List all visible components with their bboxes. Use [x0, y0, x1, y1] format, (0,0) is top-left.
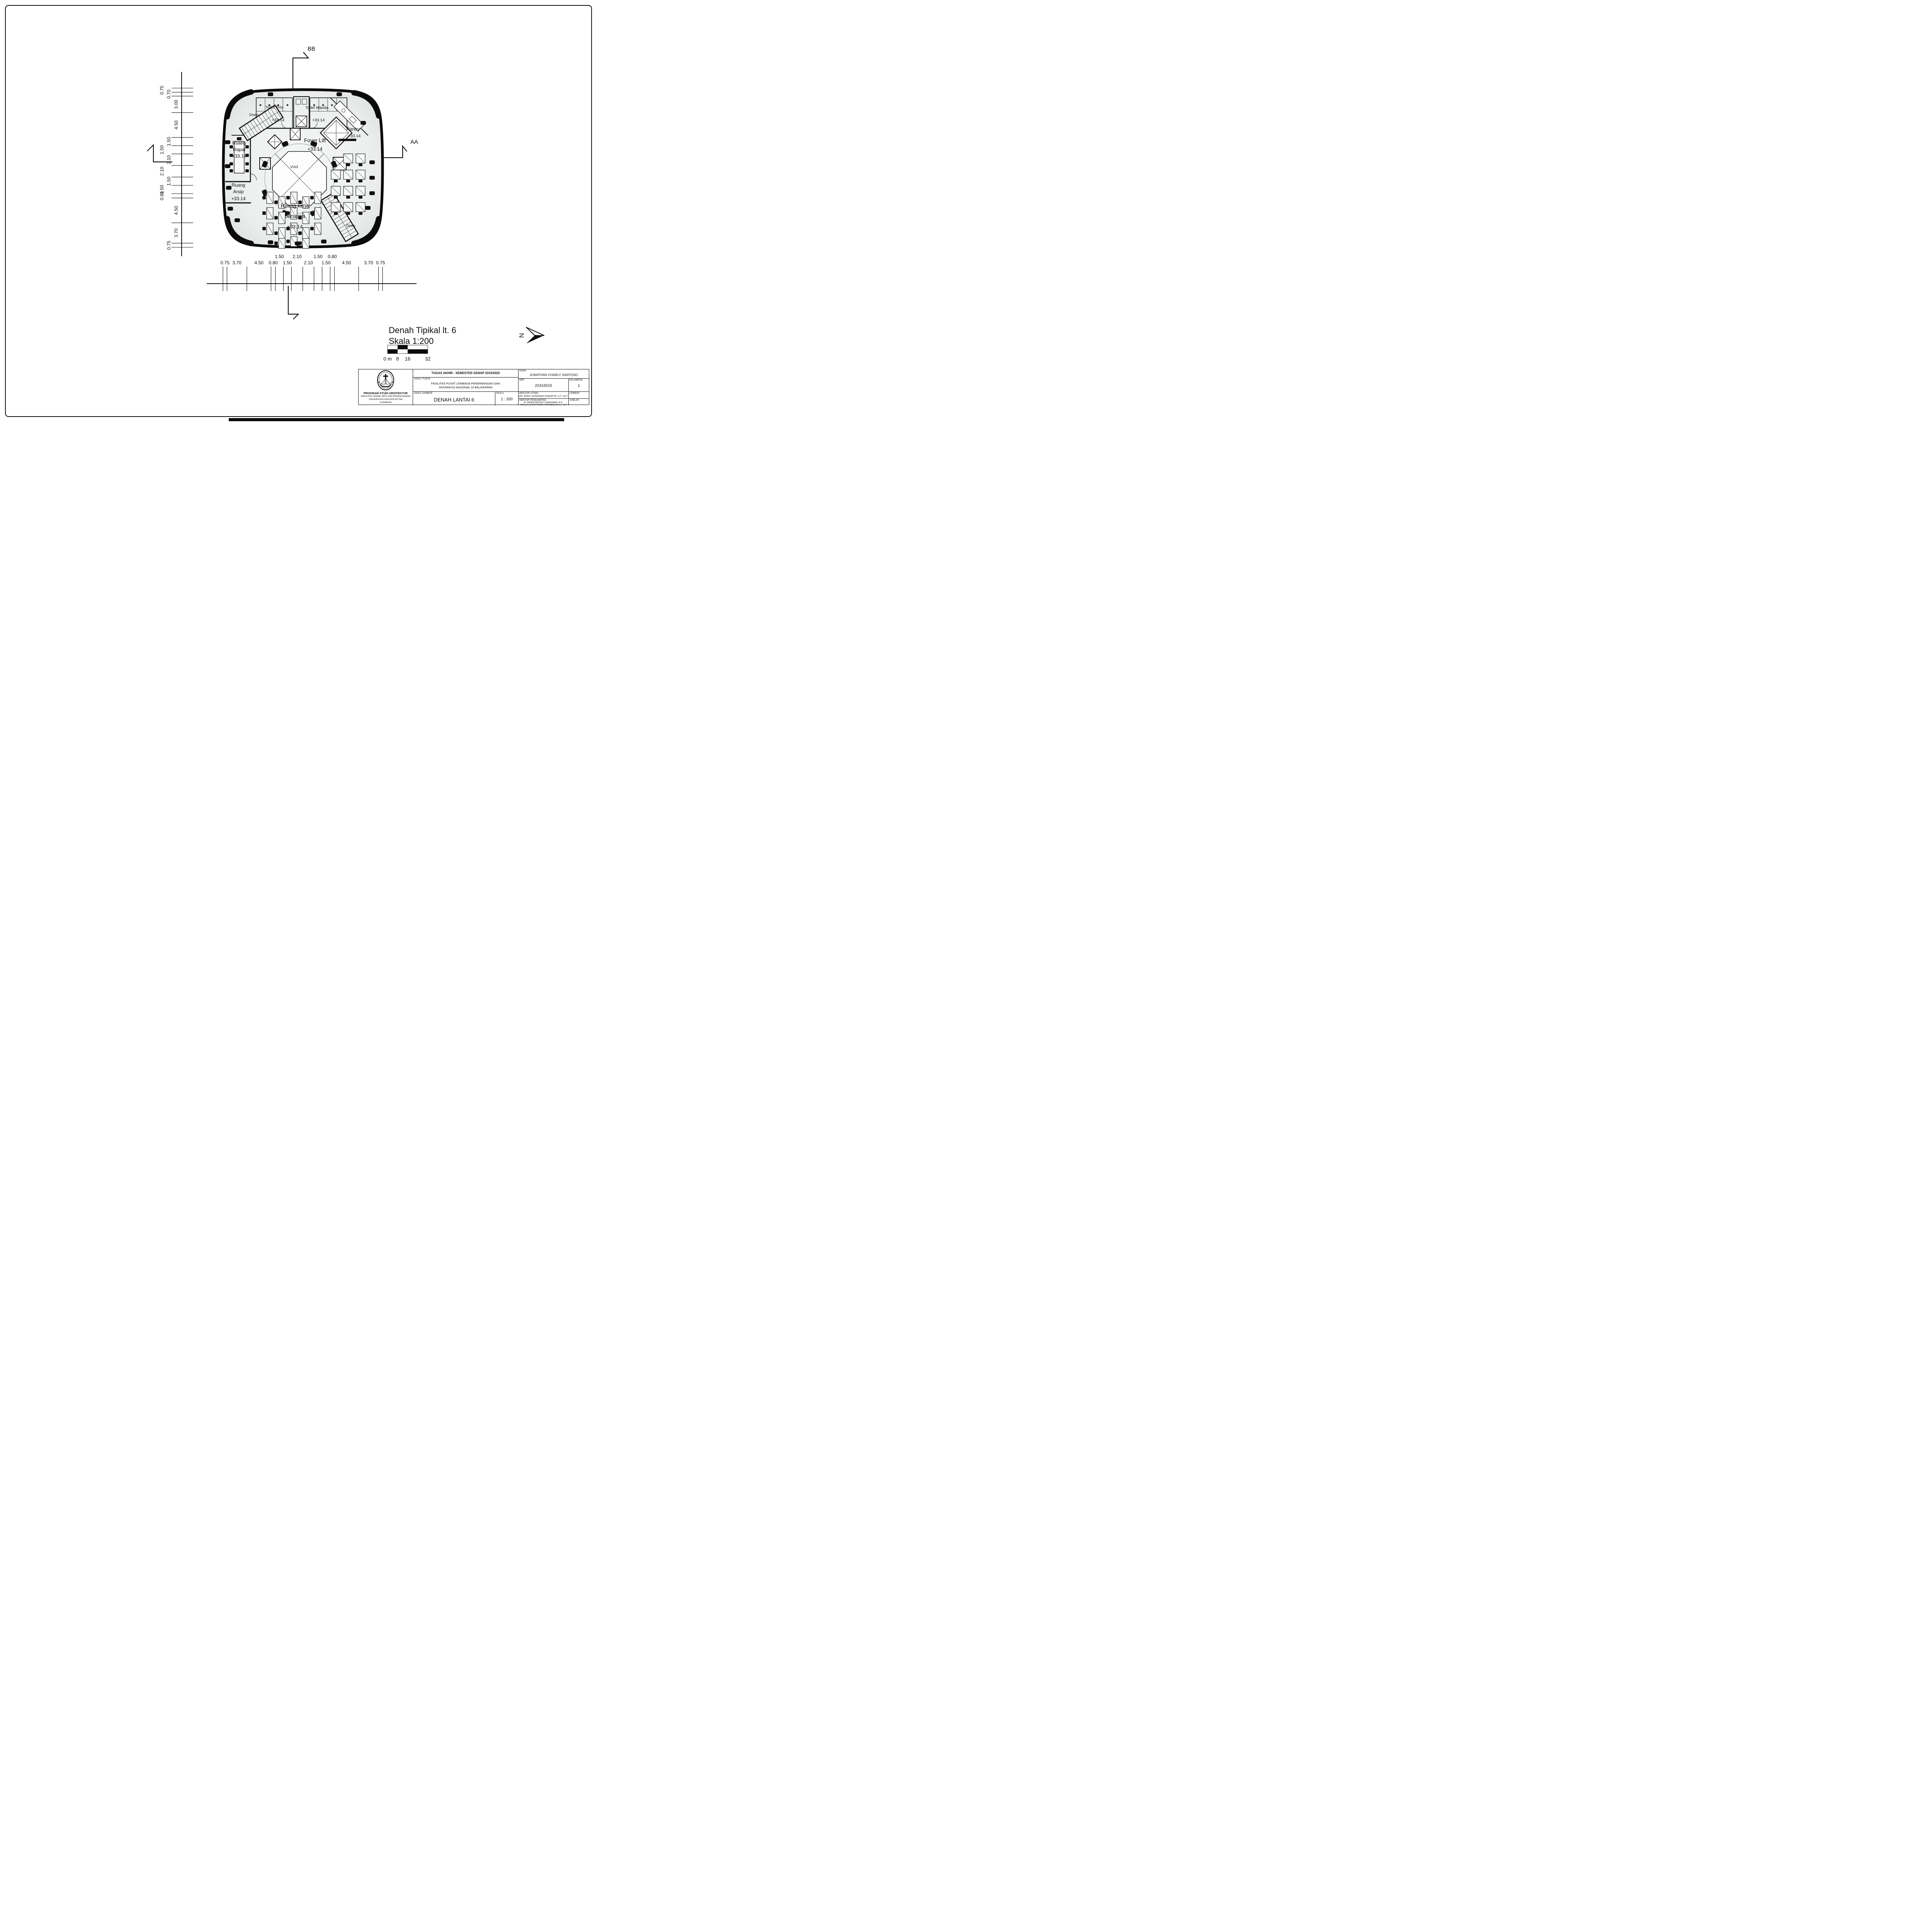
nrp-label: NRP [519, 379, 524, 381]
chair [359, 180, 362, 182]
scalebar-seg [408, 349, 428, 354]
floor-plan: Toilet Pria +33.14 Toilet Wanita +33.14 … [223, 90, 383, 248]
furniture-blob [369, 176, 375, 180]
label-ruang-arsip-1: Ruang [231, 182, 245, 188]
judul-tugas-line2: ANTARIKSA NASIONAL DI BALIKPAPAN [413, 386, 518, 389]
petra-university-logo [376, 370, 396, 390]
skala-cell: SKALA 1 : 200 [495, 391, 518, 405]
skala-value: 1 : 200 [495, 397, 518, 401]
furniture-blob [268, 92, 273, 96]
kelompok-label: KELOMPOK [570, 379, 583, 381]
label-ruang-rapat-elev: +33.14 [232, 153, 246, 159]
furniture-blob [225, 140, 230, 144]
mentor-pendamping-cell: MENTOR PENDAMPING IR. WANDA WIDIGDO CANA… [518, 398, 568, 405]
jumlah-cell: JUMLAH [568, 398, 589, 405]
label-void: Void [290, 165, 298, 169]
mentor-utama-cell: MENTOR UTAMA DR. RONY GUNAWAN SUNARYO, S… [518, 391, 568, 398]
dim-label-left: 1.50 [166, 137, 172, 146]
furniture-blob [321, 240, 327, 243]
label-ruang-arsip-elev: +33.14 [231, 196, 245, 201]
dim-label-bottom: 0.80 [328, 254, 337, 259]
dim-label-bottom: 0.80 [269, 260, 278, 265]
dim-label-bottom: 1.50 [275, 254, 284, 259]
label-toilet-pria-elev: +33.14 [272, 118, 285, 122]
north-arrow: N [518, 327, 544, 344]
chair [298, 231, 302, 235]
kelompok-cell: KELOMPOK 1 [568, 378, 589, 391]
chair [286, 196, 290, 199]
furniture-blob [225, 164, 230, 168]
dim-label-left: 4.50 [173, 206, 179, 215]
nama-label: NAMA [519, 370, 526, 372]
north-label: N [518, 333, 525, 338]
skala-label: SKALA [496, 392, 504, 395]
chair [286, 240, 290, 243]
chair [346, 212, 350, 215]
scalebar-label: 0 m [383, 356, 392, 362]
furniture-blob [361, 121, 366, 125]
label-pantry: Pantry [347, 126, 360, 132]
furniture-blob [295, 242, 300, 245]
mentor-pendamping-2: ANGELA CHRISTYSONIA TAMPUBOLON S.T., M.T… [519, 404, 568, 406]
chair [274, 216, 278, 219]
dim-label-left: 3.70 [173, 228, 179, 238]
chair [274, 242, 278, 245]
chair [334, 180, 338, 182]
furniture-blob [235, 218, 240, 222]
title-block-header-cell: TUGAS AKHIR - SEMESTER GENAP 2019/2020 [413, 369, 518, 377]
label-toilet-wanita-elev: +33.14 [312, 118, 325, 122]
tugas-akhir-header: TUGAS AKHIR - SEMESTER GENAP 2019/2020 [413, 371, 518, 375]
dim-label-bottom: 2.10 [293, 254, 302, 259]
program-studi: PROGRAM STUDI ARSITEKTUR [359, 391, 413, 395]
title-block: PROGRAM STUDI ARSITEKTUR FAKULTAS TEKNIK… [358, 369, 589, 405]
nama-cell: NAMA JONATHAN CHARLY SANTOSO [518, 369, 589, 378]
furniture-blob [337, 92, 342, 96]
lembar-cell: LEMBAR [568, 391, 589, 398]
section-line-b-bottom [288, 286, 298, 319]
nrp-value: 22416015 [519, 384, 568, 388]
dim-label-bottom: 0.75 [376, 260, 385, 265]
judul-gambar-cell: JUDUL GAMBAR DENAH LANTAI 6 [413, 391, 495, 405]
dim-label-left: 0.75 [159, 85, 165, 95]
chair [346, 180, 350, 182]
scalebar-seg [398, 345, 408, 349]
label-foyer-lift: Foyer Lift [304, 138, 326, 143]
mentor-utama-value: DR. RONY GUNAWAN SUNARYO, S.T., M.T. [519, 395, 568, 398]
dim-label-left: 1.50 [159, 145, 165, 155]
chair [359, 212, 362, 215]
lembar-label: LEMBAR [570, 392, 579, 395]
nrp-cell: NRP 22416015 [518, 378, 568, 391]
chair [274, 201, 278, 204]
sheet-bottom-bar [229, 418, 564, 421]
chair [310, 211, 314, 215]
dim-label-bottom: 2.10 [304, 260, 313, 265]
plan-footer: Denah Tipikal lt. 6 Skala 1:200 0 m81632… [383, 325, 544, 362]
dim-label-bottom: 1.50 [283, 260, 292, 265]
dim-label-left: 2.10 [159, 167, 165, 176]
kota: SURABAYA [359, 401, 413, 404]
dim-label-bottom: 1.50 [321, 260, 331, 265]
label-toilet-pria: Toilet Pria [265, 105, 283, 110]
chair [262, 196, 266, 199]
chair [334, 196, 338, 199]
label-ruang-rapat-1: Ruang [232, 140, 246, 146]
dim-label-bottom: 3.70 [232, 260, 241, 265]
scalebar-label: 16 [405, 356, 410, 362]
universitas: UNIVERSITAS KRISTEN PETRA [359, 398, 413, 401]
label-foyer-lift-elev: +33.14 [308, 146, 323, 152]
chair [346, 163, 350, 166]
chair [262, 211, 266, 215]
chair [310, 227, 314, 230]
label-ruang-kerja-2: bersama [285, 213, 305, 219]
dim-label-left: 3.00 [173, 100, 179, 109]
scalebar-label: 8 [396, 356, 399, 362]
dim-label-left: 0.75 [166, 241, 172, 250]
dim-label-left: 1.50 [166, 177, 172, 186]
dim-label-bottom: 0.75 [221, 260, 230, 265]
label-ruang-arsip-2: Arsip [233, 189, 244, 194]
judul-tugas-line1: FASILITAS PUSAT LEMBAGA PENERBANGAN DAN [413, 382, 518, 385]
label-ruang-kerja-1: Ruang kerja [281, 203, 309, 209]
dim-label-left: 0.80 [159, 191, 165, 201]
chair [274, 231, 278, 235]
dim-label-bottom: 4.50 [254, 260, 264, 265]
title-block-institution-cell: PROGRAM STUDI ARSITEKTUR FAKULTAS TEKNIK… [359, 369, 413, 405]
dim-label-left: 2.10 [166, 155, 172, 164]
dim-label-left: 0.70 [166, 90, 172, 99]
label-ruang-rapat-2: Rapat [233, 147, 246, 152]
kelompok-value: 1 [569, 384, 589, 388]
chair [359, 196, 362, 199]
label-down-nw: Down [249, 113, 259, 117]
scale-bar: 0 m81632 [383, 345, 430, 362]
plan-title: Denah Tipikal lt. 6 [389, 325, 456, 335]
plan-scale: Skala 1:200 [389, 336, 434, 346]
chair [359, 163, 362, 166]
furniture-blob [369, 160, 375, 164]
furniture-blob [369, 191, 375, 195]
scalebar-seg [388, 349, 398, 354]
label-down-se: Down [346, 224, 355, 228]
judul-gambar-label: JUDUL GAMBAR [414, 392, 432, 395]
furniture-blob [226, 186, 231, 190]
fakultas: FAKULTAS TEKNIK SIPIL DAN PERENCANAAN [359, 395, 413, 398]
section-line-b-top [293, 52, 308, 90]
drawing-sheet: Toilet Pria +33.14 Toilet Wanita +33.14 … [0, 0, 597, 422]
furniture-blob [365, 206, 371, 210]
chair [310, 196, 314, 199]
judul-gambar-value: DENAH LANTAI 6 [413, 397, 495, 403]
section-label-aa: AA [410, 139, 418, 145]
mentor-utama-label: MENTOR UTAMA [519, 392, 538, 395]
judul-tugas-label: JUDUL TUGAS [414, 378, 430, 380]
label-ruang-kerja-elev: +33.14 [287, 224, 303, 230]
label-toilet-wanita: Toilet Wanita [305, 105, 328, 110]
furniture-blob [268, 240, 273, 244]
dim-label-bottom: 1.50 [313, 254, 323, 259]
chair [334, 212, 338, 215]
chair [346, 196, 350, 199]
furniture-blob [228, 207, 233, 211]
section-label-bb: BB [308, 46, 315, 52]
jumlah-label: JUMLAH [570, 399, 579, 401]
chair [262, 227, 266, 230]
dim-label-left: 4.50 [173, 121, 179, 130]
judul-tugas-cell: JUDUL TUGAS FASILITAS PUSAT LEMBAGA PENE… [413, 377, 518, 391]
nama-value: JONATHAN CHARLY SANTOSO [519, 373, 589, 377]
label-pantry-elev: +33.14 [348, 134, 361, 138]
plan-svg: Toilet Pria +33.14 Toilet Wanita +33.14 … [0, 0, 597, 422]
section-line-a-right [381, 146, 407, 158]
dim-label-bottom: 4.50 [342, 260, 351, 265]
dim-label-bottom: 3.70 [364, 260, 373, 265]
scalebar-label: 32 [425, 356, 430, 362]
